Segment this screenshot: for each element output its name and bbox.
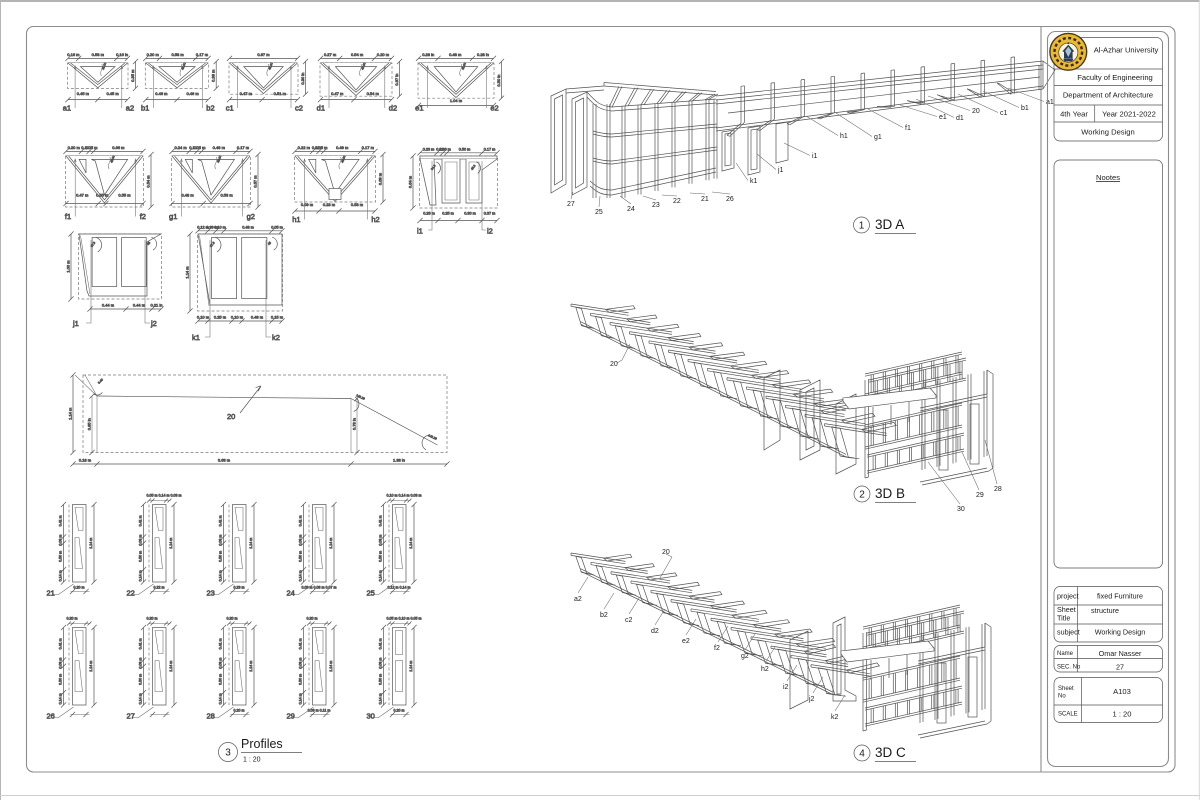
- svg-text:0.50 m: 0.50 m: [459, 148, 471, 152]
- svg-text:a1: a1: [63, 104, 71, 113]
- svg-text:0.05 m: 0.05 m: [96, 193, 109, 198]
- svg-text:0.05 m: 0.05 m: [193, 145, 206, 150]
- svg-text:0.14 m: 0.14 m: [219, 570, 223, 581]
- svg-text:3D B: 3D B: [875, 486, 905, 501]
- svg-text:b1: b1: [1021, 105, 1029, 112]
- svg-text:0.05 m: 0.05 m: [315, 145, 328, 150]
- svg-text:0.47 m: 0.47 m: [331, 91, 344, 96]
- svg-text:0.20 m: 0.20 m: [67, 617, 78, 621]
- svg-text:0.41 m: 0.41 m: [59, 638, 63, 649]
- svg-text:1.04 m: 1.04 m: [450, 98, 463, 103]
- svg-text:1: 1: [859, 221, 865, 232]
- svg-text:0.09 m: 0.09 m: [379, 535, 383, 546]
- svg-text:1.14 m: 1.14 m: [249, 538, 253, 549]
- svg-text:0.54 m: 0.54 m: [351, 52, 364, 57]
- svg-text:0.45 m: 0.45 m: [77, 91, 90, 96]
- svg-text:1.14 m: 1.14 m: [68, 407, 73, 420]
- svg-text:3D A: 3D A: [875, 217, 904, 232]
- svg-text:0.85 in: 0.85 in: [87, 418, 92, 430]
- svg-text:f1: f1: [905, 125, 911, 132]
- svg-text:0.20 m: 0.20 m: [74, 586, 85, 590]
- svg-text:23: 23: [652, 202, 660, 209]
- svg-text:0.09 m 0.11 m: 0.09 m 0.11 m: [308, 709, 331, 713]
- svg-text:0.51 m: 0.51 m: [274, 91, 287, 96]
- svg-text:0.45 m: 0.45 m: [106, 91, 119, 96]
- svg-text:1.14 m: 1.14 m: [185, 266, 190, 279]
- svg-text:Name: Name: [1057, 651, 1074, 657]
- svg-text:e1: e1: [415, 104, 423, 113]
- svg-text:0.20 m: 0.20 m: [394, 709, 405, 713]
- svg-text:0.41 m: 0.41 m: [379, 515, 383, 526]
- svg-text:0.17 m: 0.17 m: [484, 148, 496, 152]
- svg-text:0.20 m: 0.20 m: [147, 617, 158, 621]
- svg-text:0.14 m: 0.14 m: [219, 693, 223, 704]
- svg-text:24: 24: [627, 206, 635, 213]
- svg-text:0.41 m: 0.41 m: [299, 638, 303, 649]
- svg-text:h2: h2: [371, 215, 379, 224]
- svg-text:0.09 m: 0.09 m: [59, 535, 63, 546]
- svg-text:0.78 in: 0.78 in: [352, 418, 357, 430]
- svg-text:0.14 m: 0.14 m: [139, 693, 143, 704]
- svg-text:0.35 m: 0.35 m: [130, 69, 135, 82]
- svg-text:0.14 m: 0.14 m: [379, 570, 383, 581]
- svg-text:0.16 m: 0.16 m: [67, 52, 80, 57]
- svg-text:0.10 m: 0.10 m: [231, 315, 244, 320]
- svg-text:i1: i1: [812, 153, 818, 160]
- svg-text:a2: a2: [574, 596, 582, 603]
- svg-text:1.38 in: 1.38 in: [393, 458, 405, 463]
- svg-text:subject: subject: [1057, 628, 1080, 637]
- svg-text:0.09 m: 0.09 m: [299, 658, 303, 669]
- svg-text:1.14 m: 1.14 m: [89, 661, 93, 672]
- svg-text:0.17 m: 0.17 m: [196, 52, 209, 57]
- svg-text:2: 2: [859, 490, 865, 501]
- svg-text:27: 27: [127, 712, 135, 721]
- svg-text:0.17 m: 0.17 m: [362, 145, 375, 150]
- svg-text:21: 21: [701, 196, 709, 203]
- svg-text:0.39 m: 0.39 m: [211, 69, 216, 82]
- svg-text:fixed Furniture: fixed Furniture: [1097, 592, 1143, 601]
- svg-text:22: 22: [127, 589, 135, 598]
- svg-text:e2: e2: [490, 104, 498, 113]
- svg-text:22: 22: [673, 198, 681, 205]
- svg-text:j1: j1: [777, 167, 784, 174]
- svg-text:0.09 m: 0.09 m: [139, 535, 143, 546]
- svg-text:0.58 m: 0.58 m: [171, 52, 184, 57]
- svg-text:0.46 m: 0.46 m: [155, 91, 168, 96]
- svg-text:0.09 m: 0.09 m: [299, 535, 303, 546]
- svg-text:0.09 m: 0.09 m: [301, 202, 314, 207]
- svg-text:0.17 m: 0.17 m: [237, 145, 250, 150]
- svg-text:0.10 m: 0.10 m: [197, 315, 210, 320]
- svg-text:Department of Architecture: Department of Architecture: [1063, 91, 1153, 100]
- svg-text:Sheet: Sheet: [1058, 686, 1074, 692]
- svg-text:0.09 m: 0.09 m: [59, 658, 63, 669]
- svg-text:Al-Azhar University: Al-Azhar University: [1094, 46, 1159, 55]
- svg-text:26: 26: [47, 712, 55, 721]
- svg-text:0.49 m: 0.49 m: [336, 145, 349, 150]
- svg-text:0.41 m: 0.41 m: [219, 638, 223, 649]
- svg-text:0.47 m: 0.47 m: [76, 193, 89, 198]
- svg-text:Omar Nasser: Omar Nasser: [1099, 649, 1142, 658]
- svg-text:0.09 m: 0.09 m: [379, 658, 383, 669]
- svg-text:0.20 m: 0.20 m: [68, 145, 81, 150]
- svg-text:0.53 m: 0.53 m: [351, 202, 364, 207]
- svg-text:e2: e2: [682, 638, 690, 645]
- svg-text:0.44 m: 0.44 m: [102, 303, 115, 308]
- svg-text:Nootes: Nootes: [1096, 173, 1120, 182]
- svg-text:k2: k2: [831, 714, 839, 721]
- svg-text:20: 20: [972, 108, 980, 115]
- svg-text:27: 27: [1116, 663, 1124, 672]
- svg-text:b1: b1: [141, 104, 149, 113]
- svg-text:4th Year: 4th Year: [1060, 110, 1088, 119]
- svg-text:0.44 m: 0.44 m: [133, 303, 146, 308]
- svg-text:h1: h1: [840, 133, 848, 140]
- svg-text:0.64 m: 0.64 m: [408, 175, 413, 188]
- svg-text:30: 30: [957, 506, 965, 513]
- svg-text:0.25 m: 0.25 m: [442, 212, 454, 216]
- svg-text:0.54 m: 0.54 m: [367, 91, 380, 96]
- svg-text:0.28 in: 0.28 in: [422, 52, 434, 57]
- svg-text:h2: h2: [761, 666, 769, 673]
- svg-text:0.20 m: 0.20 m: [377, 52, 390, 57]
- svg-text:0.23 m: 0.23 m: [323, 202, 336, 207]
- svg-text:0.14 m: 0.14 m: [299, 693, 303, 704]
- svg-text:1.14 m: 1.14 m: [409, 538, 413, 549]
- svg-text:0.41 m: 0.41 m: [219, 515, 223, 526]
- svg-text:Title: Title: [1057, 614, 1070, 623]
- svg-text:0.14 m: 0.14 m: [59, 570, 63, 581]
- svg-text:0.28 in: 0.28 in: [477, 52, 489, 57]
- svg-text:0.48 m: 0.48 m: [251, 315, 264, 320]
- svg-text:0.41 m: 0.41 m: [59, 515, 63, 526]
- svg-text:0.09 m: 0.09 m: [219, 658, 223, 669]
- svg-text:0.23 m: 0.23 m: [234, 586, 245, 590]
- svg-text:29: 29: [287, 712, 295, 721]
- svg-text:0.48 m: 0.48 m: [242, 226, 254, 230]
- svg-text:Working Design: Working Design: [1081, 128, 1134, 137]
- svg-text:0.05 m: 0.05 m: [271, 226, 283, 230]
- svg-text:0.15 m: 0.15 m: [271, 315, 284, 320]
- svg-text:1 : 20: 1 : 20: [1113, 710, 1132, 719]
- svg-text:c2: c2: [295, 104, 303, 113]
- svg-text:0.55 m: 0.55 m: [118, 193, 131, 198]
- svg-text:d2: d2: [651, 628, 659, 635]
- svg-text:4: 4: [859, 749, 865, 760]
- svg-text:0.06 m: 0.06 m: [439, 148, 451, 152]
- svg-text:i2: i2: [783, 684, 789, 691]
- svg-text:a2: a2: [126, 104, 134, 113]
- svg-text:Faculty of Engineering: Faculty of Engineering: [1077, 73, 1153, 82]
- svg-text:0.50 m: 0.50 m: [299, 551, 303, 562]
- svg-text:0.50 in: 0.50 in: [496, 75, 501, 87]
- svg-text:0.16 in: 0.16 in: [116, 52, 128, 57]
- svg-text:0.54 m: 0.54 m: [146, 175, 151, 188]
- svg-text:0.58 m: 0.58 m: [92, 52, 105, 57]
- svg-text:0.27 m: 0.27 m: [324, 52, 337, 57]
- svg-text:j2: j2: [808, 696, 815, 703]
- svg-text:1.00 m: 1.00 m: [66, 260, 71, 273]
- svg-text:1.14 m: 1.14 m: [169, 538, 173, 549]
- svg-text:1.14 m: 1.14 m: [409, 661, 413, 672]
- svg-text:0.10 m: 0.10 m: [214, 226, 226, 230]
- svg-text:20: 20: [662, 549, 670, 556]
- svg-text:g1: g1: [169, 212, 177, 221]
- svg-text:k1: k1: [750, 178, 758, 185]
- svg-text:0.22 m: 0.22 m: [154, 586, 165, 590]
- svg-text:b2: b2: [600, 612, 608, 619]
- svg-text:21: 21: [47, 589, 55, 598]
- svg-text:0.47 m: 0.47 m: [240, 91, 253, 96]
- svg-text:0.41 m: 0.41 m: [139, 515, 143, 526]
- svg-text:A103: A103: [1113, 687, 1131, 696]
- svg-text:30: 30: [367, 712, 375, 721]
- svg-text:0.50 m: 0.50 m: [379, 551, 383, 562]
- svg-text:0.49 m: 0.49 m: [213, 145, 226, 150]
- svg-text:0.21 in: 0.21 in: [150, 303, 162, 308]
- svg-text:0.14 m: 0.14 m: [139, 570, 143, 581]
- svg-text:0.25 m: 0.25 m: [214, 315, 227, 320]
- svg-text:0.05 m 0.10 m 0.05 m: 0.05 m 0.10 m 0.05 m: [387, 617, 422, 621]
- svg-text:3.68 m: 3.68 m: [218, 458, 231, 463]
- svg-text:0.14 m: 0.14 m: [59, 693, 63, 704]
- svg-text:0.50 m: 0.50 m: [59, 674, 63, 685]
- svg-text:0.20 m: 0.20 m: [227, 617, 238, 621]
- svg-text:SCALE: SCALE: [1058, 712, 1078, 718]
- svg-text:0.48 m: 0.48 m: [181, 193, 194, 198]
- svg-text:0.22 m: 0.22 m: [298, 145, 311, 150]
- svg-text:f2: f2: [714, 645, 720, 652]
- svg-text:0.50 m: 0.50 m: [219, 551, 223, 562]
- svg-text:0.50 m: 0.50 m: [59, 551, 63, 562]
- svg-text:1 : 20: 1 : 20: [243, 757, 261, 764]
- svg-text:e1: e1: [939, 114, 947, 121]
- svg-text:3D C: 3D C: [875, 745, 906, 760]
- svg-text:d1: d1: [317, 104, 325, 113]
- svg-text:structure: structure: [1091, 606, 1119, 615]
- svg-text:1.14 m: 1.14 m: [329, 661, 333, 672]
- svg-text:1.14 m: 1.14 m: [169, 661, 173, 672]
- svg-text:j1: j1: [72, 319, 79, 328]
- svg-text:0.67 in: 0.67 in: [394, 74, 399, 86]
- svg-text:0.20 m: 0.20 m: [234, 709, 245, 713]
- svg-text:0.30 m: 0.30 m: [464, 212, 476, 216]
- svg-text:0.50 m: 0.50 m: [299, 674, 303, 685]
- svg-text:Working Design: Working Design: [1095, 628, 1146, 637]
- svg-text:0.20 m: 0.20 m: [307, 617, 318, 621]
- svg-text:24: 24: [287, 589, 295, 598]
- svg-text:0.09 m: 0.09 m: [139, 658, 143, 669]
- svg-text:28: 28: [994, 486, 1002, 493]
- svg-text:29: 29: [976, 492, 984, 499]
- svg-text:f2: f2: [140, 212, 146, 221]
- svg-text:20: 20: [610, 361, 618, 368]
- svg-text:0.53 m: 0.53 m: [220, 193, 233, 198]
- svg-text:1.14 m: 1.14 m: [249, 661, 253, 672]
- svg-text:j2: j2: [150, 319, 157, 328]
- svg-text:f1: f1: [65, 212, 71, 221]
- svg-text:0.50 m: 0.50 m: [379, 674, 383, 685]
- svg-text:0.24 m: 0.24 m: [174, 145, 187, 150]
- svg-text:Profiles: Profiles: [241, 737, 283, 751]
- svg-text:h1: h1: [292, 215, 300, 224]
- svg-text:k1: k1: [192, 333, 200, 342]
- svg-text:g2: g2: [741, 653, 749, 660]
- svg-text:project: project: [1057, 592, 1079, 601]
- svg-text:0.50 m: 0.50 m: [139, 551, 143, 562]
- svg-text:0.41 m: 0.41 m: [139, 638, 143, 649]
- svg-text:0.26 m: 0.26 m: [423, 212, 435, 216]
- svg-text:g2: g2: [247, 212, 255, 221]
- svg-text:28: 28: [207, 712, 215, 721]
- svg-text:25: 25: [595, 209, 603, 216]
- svg-text:0.18 m: 0.18 m: [79, 458, 92, 463]
- svg-text:0.20 m: 0.20 m: [147, 52, 160, 57]
- svg-text:i1: i1: [417, 227, 423, 236]
- svg-text:0.30 in: 0.30 in: [300, 73, 305, 85]
- svg-text:0.50 m: 0.50 m: [219, 674, 223, 685]
- svg-text:0.14 m: 0.14 m: [379, 693, 383, 704]
- svg-text:20: 20: [227, 412, 235, 421]
- svg-text:25: 25: [367, 589, 375, 598]
- svg-text:SEC. No: SEC. No: [1057, 665, 1081, 671]
- svg-text:26: 26: [726, 196, 734, 203]
- svg-text:3: 3: [225, 748, 231, 759]
- svg-text:1.14 m: 1.14 m: [89, 538, 93, 549]
- svg-text:c2: c2: [625, 617, 633, 624]
- svg-text:Year 2021-2022: Year 2021-2022: [1102, 110, 1156, 119]
- svg-text:0.97 m: 0.97 m: [257, 52, 270, 57]
- svg-text:27: 27: [567, 201, 575, 208]
- svg-text:0.41 m: 0.41 m: [379, 638, 383, 649]
- svg-text:0.41 m: 0.41 m: [299, 515, 303, 526]
- svg-text:0.05 m 0.14 m 0.03 m: 0.05 m 0.14 m 0.03 m: [147, 494, 182, 498]
- svg-text:0.50 m: 0.50 m: [139, 674, 143, 685]
- svg-text:No: No: [1058, 694, 1066, 700]
- svg-text:c1: c1: [226, 104, 234, 113]
- svg-text:0.57 m: 0.57 m: [253, 175, 258, 188]
- svg-text:d1: d1: [956, 115, 964, 122]
- svg-text:0.46 m: 0.46 m: [186, 91, 199, 96]
- svg-text:g1: g1: [874, 134, 882, 141]
- svg-text:0.14 m: 0.14 m: [299, 570, 303, 581]
- svg-text:0.09 m: 0.09 m: [219, 535, 223, 546]
- svg-text:i2: i2: [487, 227, 493, 236]
- svg-text:1.14 m: 1.14 m: [329, 538, 333, 549]
- svg-text:d2: d2: [389, 104, 397, 113]
- svg-text:b2: b2: [206, 104, 214, 113]
- svg-text:0.10 m 0.14 m 0.03 m: 0.10 m 0.14 m 0.03 m: [387, 494, 422, 498]
- svg-text:0.48 m: 0.48 m: [449, 52, 462, 57]
- svg-text:0.37 m: 0.37 m: [484, 212, 496, 216]
- svg-text:23: 23: [207, 589, 215, 598]
- svg-text:k2: k2: [272, 333, 280, 342]
- svg-text:0.23 m: 0.23 m: [423, 148, 435, 152]
- svg-text:0.69 m: 0.69 m: [378, 172, 383, 185]
- svg-text:c1: c1: [1000, 110, 1008, 117]
- svg-text:0.66 m: 0.66 m: [112, 145, 125, 150]
- svg-text:0.05 m: 0.05 m: [85, 145, 98, 150]
